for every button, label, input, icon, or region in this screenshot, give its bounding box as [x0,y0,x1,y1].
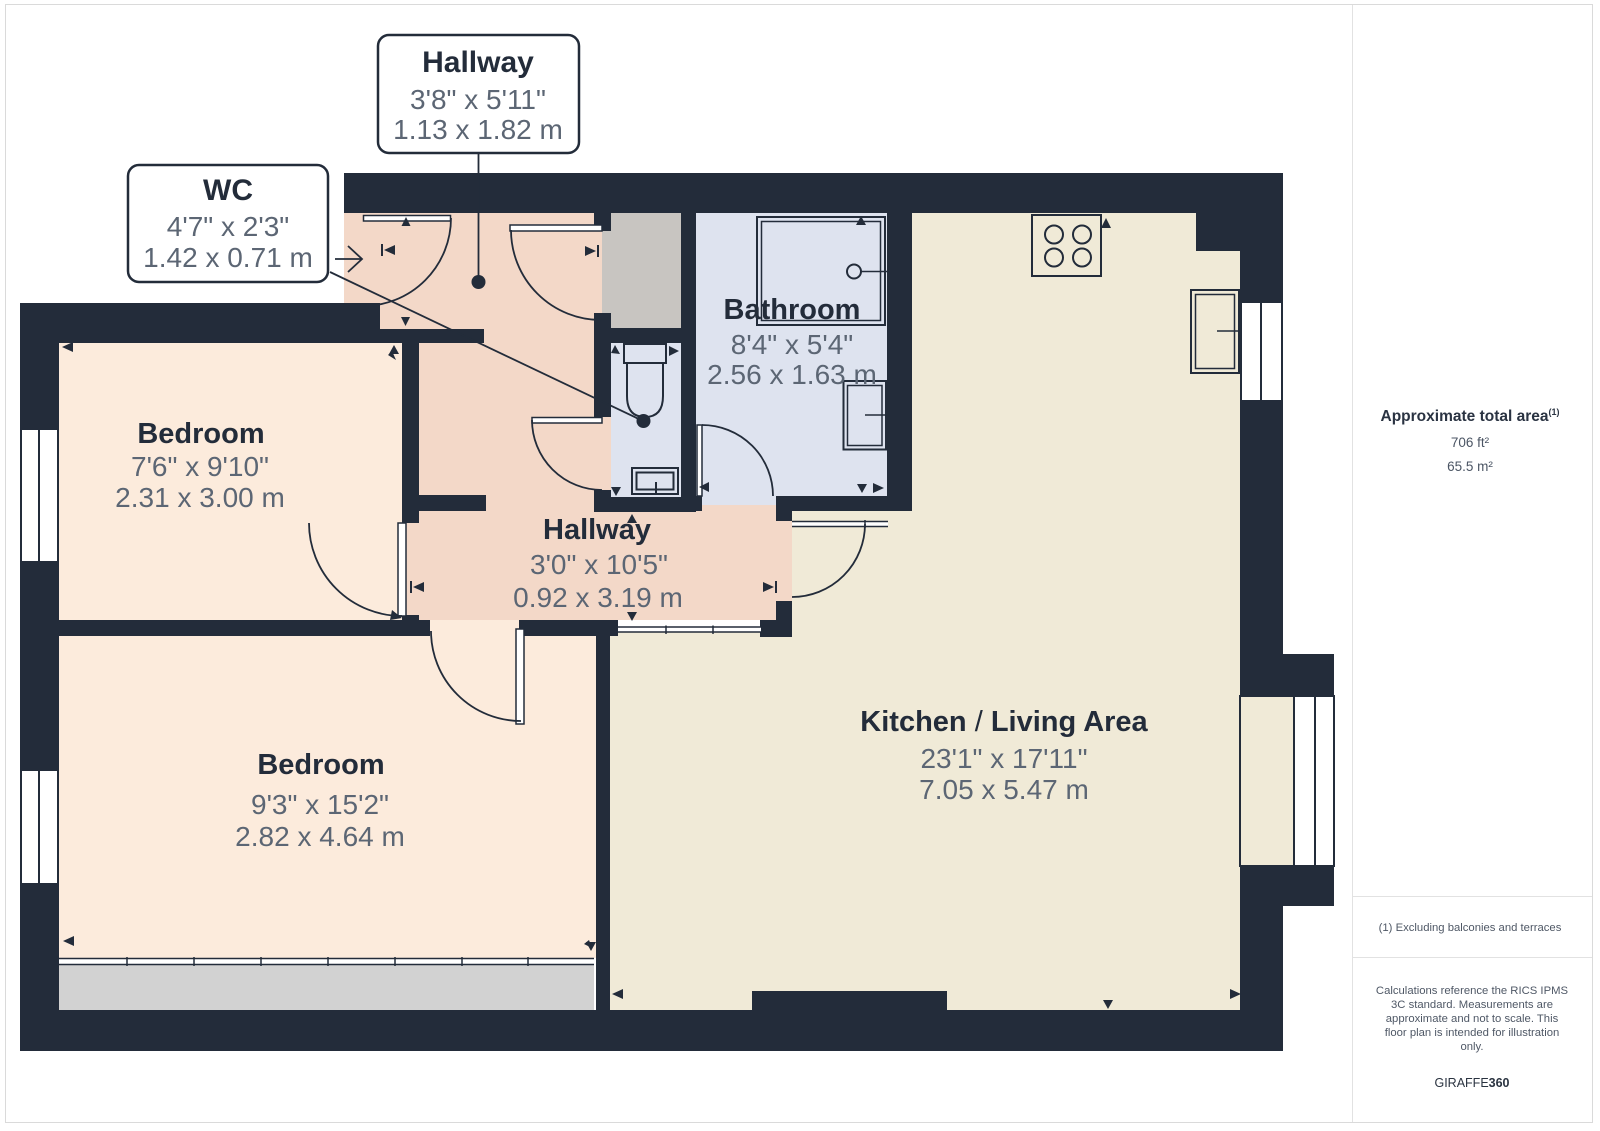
svg-text:3C standard. Measurements are: 3C standard. Measurements are [1391,999,1553,1011]
svg-text:8'4" x 5'4": 8'4" x 5'4" [731,329,853,360]
svg-text:2.31 x 3.00 m: 2.31 x 3.00 m [115,482,285,513]
svg-text:GIRAFFE360: GIRAFFE360 [1434,1076,1509,1090]
svg-text:23'1" x 17'11": 23'1" x 17'11" [920,743,1087,774]
svg-text:(1) Excluding balconies and te: (1) Excluding balconies and terraces [1379,922,1562,934]
svg-text:Approximate total area(1): Approximate total area(1) [1381,407,1560,425]
svg-text:65.5 m²: 65.5 m² [1447,459,1493,474]
svg-text:0.92 x 3.19 m: 0.92 x 3.19 m [513,582,683,613]
svg-text:1.42 x 0.71 m: 1.42 x 0.71 m [143,242,313,273]
svg-text:9'3" x 15'2": 9'3" x 15'2" [251,789,389,820]
svg-text:WC: WC [203,174,253,207]
svg-text:Hallway: Hallway [422,46,534,79]
svg-text:2.56 x 1.63 m: 2.56 x 1.63 m [707,359,877,390]
svg-text:7.05 x 5.47 m: 7.05 x 5.47 m [919,774,1089,805]
svg-text:3'8" x 5'11": 3'8" x 5'11" [410,84,546,115]
svg-text:Kitchen / Living Area: Kitchen / Living Area [860,706,1148,738]
svg-text:Bedroom: Bedroom [137,418,264,450]
svg-text:Calculations reference the RIC: Calculations reference the RICS IPMS [1376,985,1569,997]
svg-text:Hallway: Hallway [543,514,651,546]
svg-text:approximate and not to scale.: approximate and not to scale. This [1386,1013,1559,1025]
svg-text:Bathroom: Bathroom [724,294,861,326]
svg-text:1.13 x 1.82 m: 1.13 x 1.82 m [393,114,563,145]
svg-text:3'0" x 10'5": 3'0" x 10'5" [530,549,668,580]
svg-text:4'7" x 2'3": 4'7" x 2'3" [167,211,289,242]
svg-text:706 ft²: 706 ft² [1451,435,1490,450]
svg-text:2.82 x 4.64 m: 2.82 x 4.64 m [235,821,405,852]
svg-text:Bedroom: Bedroom [257,749,384,781]
svg-text:floor plan is intended for ill: floor plan is intended for illustration [1385,1027,1560,1039]
svg-text:only.: only. [1460,1041,1483,1053]
svg-text:7'6" x 9'10": 7'6" x 9'10" [131,451,269,482]
